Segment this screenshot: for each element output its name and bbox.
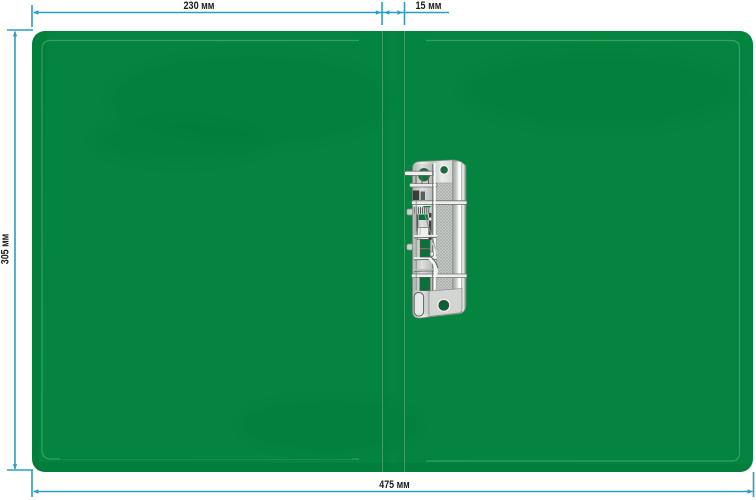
svg-text:305 мм: 305 мм	[0, 234, 12, 265]
svg-text:475 мм: 475 мм	[379, 479, 410, 491]
svg-text:15 мм: 15 мм	[416, 0, 442, 12]
svg-text:230 мм: 230 мм	[184, 0, 215, 12]
